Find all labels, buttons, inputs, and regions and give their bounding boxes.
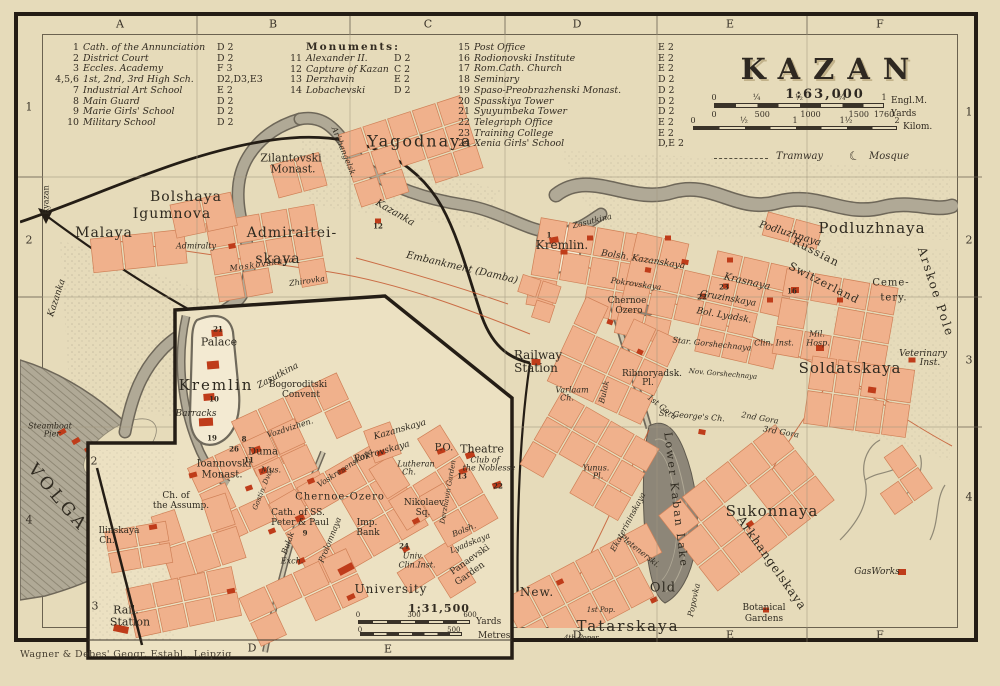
map-artwork [0, 0, 1000, 686]
attribution: Wagner & Debes' Geogr. Establ., Leipzig [20, 649, 232, 660]
map-page: YagodnayaZilantovskiMonast.BolshayaIgumn… [0, 0, 1000, 686]
